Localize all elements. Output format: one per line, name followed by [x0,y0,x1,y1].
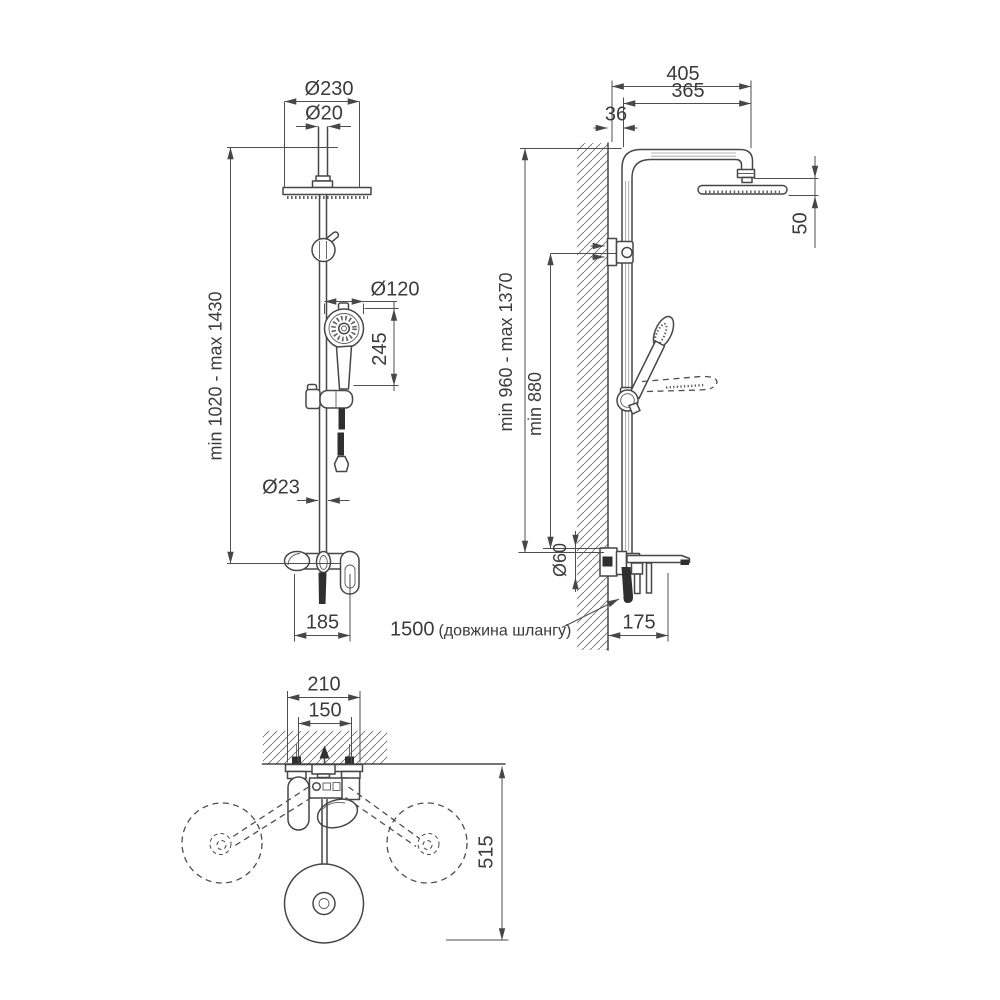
hand-shower-handle [337,346,352,389]
dim-label-column-diameter: Ø23 [262,477,300,499]
mixer-lever-side [635,574,641,594]
mixer-handle-top [288,777,309,830]
dim-label-mixer-width: 185 [306,612,339,634]
hand-shower-front [306,303,364,472]
dim-arm-reach: 365 [624,80,752,147]
dim-head-diameter: Ø230 [285,78,360,187]
dim-label-top-pipe-diameter: Ø20 [305,103,343,125]
diverter-body [312,239,335,262]
dim-label-holes-spacing: 150 [308,700,341,722]
dim-label-handshower-length: 245 [369,332,391,365]
dim-label-bracket-height: min 880 [525,372,545,436]
mixer-side [600,548,690,603]
dim-wall-offset: 36 [594,104,638,129]
front-view: Ø230 Ø20 min 1020 - max 1430 Ø120 [206,78,420,642]
dim-label-height-range: min 1020 - max 1430 [206,291,226,460]
hand-shower-alt-position [642,376,717,385]
hose-length-note: (довжина шлангу) [439,623,572,640]
slider-front [306,390,320,409]
bracket-plate [608,239,617,266]
dim-label-plate-width: 210 [307,674,340,696]
spout-outlet [681,560,690,566]
swing-position-left [182,803,262,883]
hose-length-label: 1500(довжина шлангу) [390,619,571,641]
mixer-front [285,552,360,605]
shower-system-drawing: Ø230 Ø20 min 1020 - max 1430 Ø120 [0,0,1000,1000]
hose-length-value: 1500 [390,619,435,641]
dim-label-spout-reach: 175 [622,612,655,634]
shower-column-side [622,150,753,554]
dim-label-arm-reach: 365 [671,80,704,102]
dim-label-head-diameter: Ø230 [305,78,354,100]
mount-bolt [345,757,354,764]
overhead-shower-front [283,127,371,198]
mixer-hose-front [319,573,327,605]
dim-label-supply-diameter: Ø60 [550,543,570,577]
side-view: 405 365 36 50 min 960 - max 1370 [390,63,819,650]
mixer-top [288,777,361,866]
overhead-shower-side [698,170,787,195]
swing-position-right [387,803,467,883]
dim-head-height: 50 [754,156,819,248]
dim-handshower-length: 245 [354,302,399,392]
dim-arm-overall: 405 [612,63,751,148]
dim-column-diameter: Ø23 [262,477,349,501]
mixer-spout-side [627,556,690,563]
technical-drawing-canvas: Ø230 Ø20 min 1020 - max 1430 Ø120 [0,0,1000,1000]
dim-supply-diameter: Ø60 [550,531,576,592]
hand-shower-handle-side [631,341,665,399]
dim-label-swing-radius: 515 [476,835,498,868]
mount-bolt [292,757,301,764]
dim-top-pipe-diameter: Ø20 [296,103,351,127]
hose-nozzle [335,457,349,472]
hand-shower-top [285,864,364,943]
dim-label-column-range: min 960 - max 1370 [496,272,516,431]
dim-swing-radius: 515 [446,767,509,941]
dim-label-handshower-diameter: Ø120 [371,279,420,301]
dim-label-wall-offset: 36 [605,104,627,126]
overhead-plate [283,188,371,195]
top-view: 210 150 515 [182,674,509,944]
dim-label-head-height: 50 [790,212,812,234]
dim-height-range: min 1020 - max 1430 [206,148,342,564]
hose-front [339,409,346,430]
